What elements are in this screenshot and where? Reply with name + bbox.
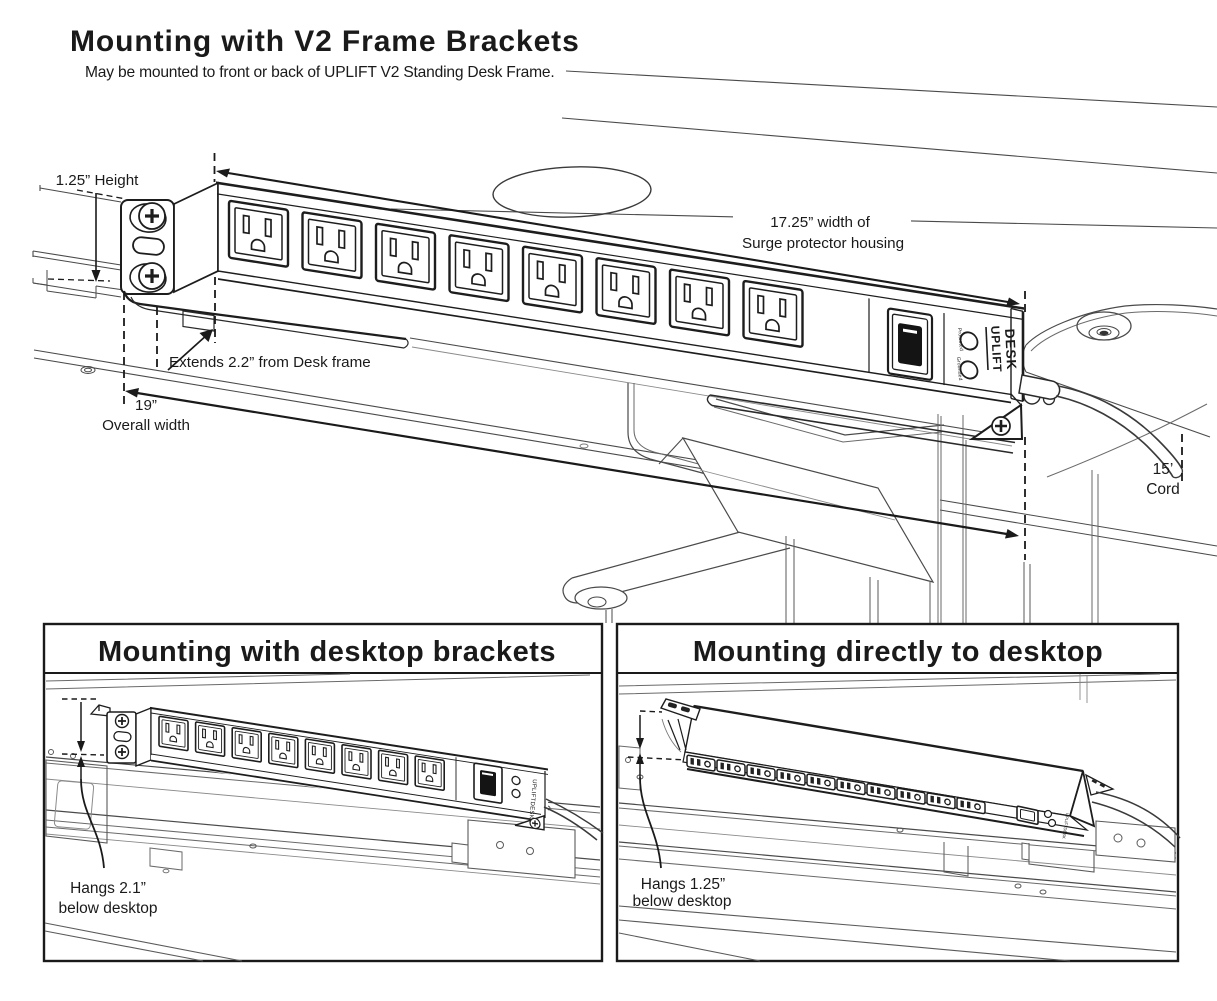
svg-text:17.25” width of: 17.25” width of [770,214,870,231]
svg-text:Overall width: Overall width [102,417,190,434]
svg-text:Surge protector housing: Surge protector housing [742,235,904,252]
svg-text:Hangs 1.25”: Hangs 1.25” [641,876,725,893]
svg-text:Hangs 2.1”: Hangs 2.1” [70,880,146,897]
svg-text:Mounting with V2 Frame Bracket: Mounting with V2 Frame Brackets [70,25,580,58]
svg-text:Extends 2.2” from Desk frame: Extends 2.2” from Desk frame [169,354,371,371]
svg-text:DESK: DESK [1002,328,1019,370]
svg-text:below desktop: below desktop [58,900,157,917]
svg-text:UPLIFT: UPLIFT [988,325,1004,372]
svg-text:19”: 19” [135,397,157,414]
svg-text:Cord: Cord [1146,481,1180,498]
svg-text:May be mounted to front or bac: May be mounted to front or back of UPLIF… [85,64,554,81]
svg-text:below desktop: below desktop [632,893,731,910]
svg-text:Mounting with desktop brackets: Mounting with desktop brackets [98,636,556,668]
svg-text:15’: 15’ [1153,461,1174,478]
svg-text:1.25” Height: 1.25” Height [56,172,140,189]
svg-text:Mounting directly to desktop: Mounting directly to desktop [693,636,1103,668]
